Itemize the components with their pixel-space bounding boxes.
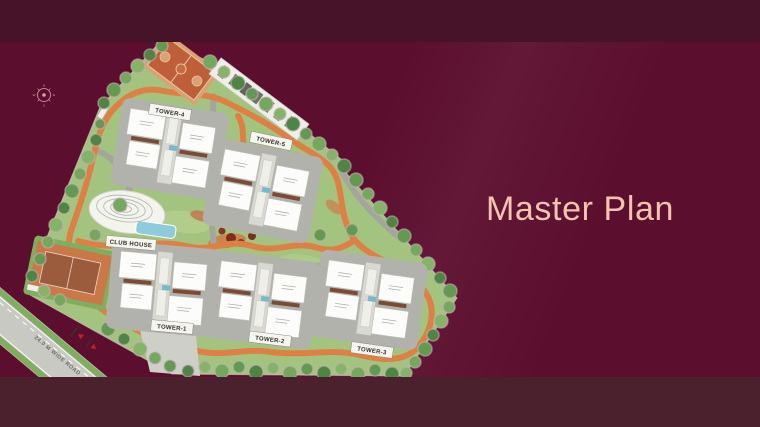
page-title: Master Plan	[486, 190, 674, 229]
entry-marker: ENTRY	[70, 325, 87, 342]
exit-marker: EXIT	[85, 338, 99, 352]
svg-text:W: W	[33, 93, 36, 97]
top-background-band	[0, 0, 760, 42]
svg-text:S: S	[43, 104, 45, 108]
bottom-background-band	[0, 377, 760, 427]
svg-text:E: E	[53, 93, 55, 97]
svg-text:N: N	[43, 84, 45, 88]
tower-3-buildings	[309, 249, 428, 351]
compass-icon: N E S W	[33, 84, 55, 108]
